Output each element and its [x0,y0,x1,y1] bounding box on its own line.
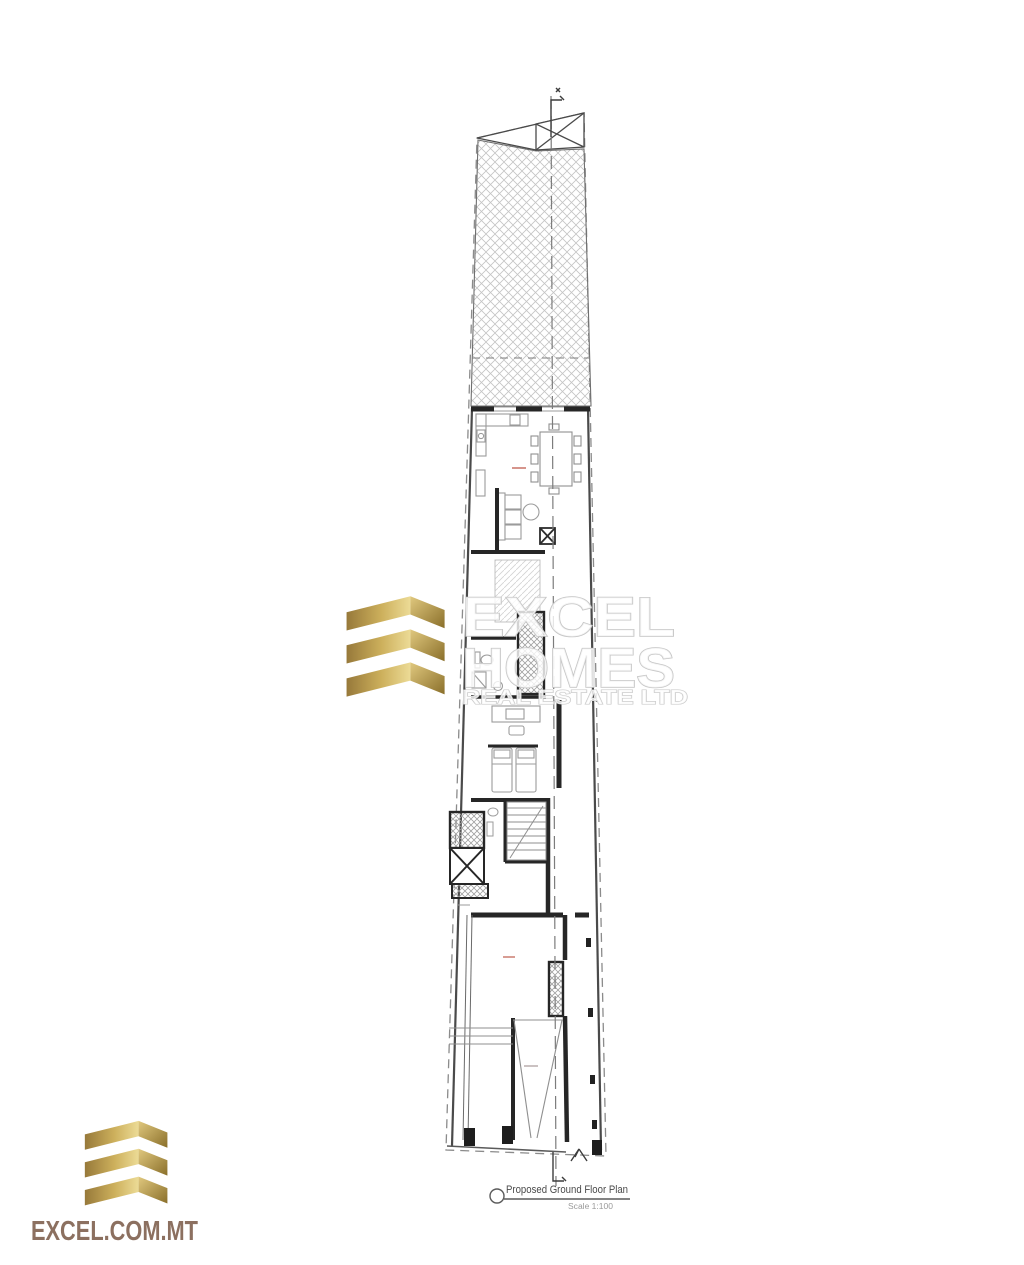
bedroom-beds [488,746,538,792]
lift-shaft [450,812,484,848]
watermark-line3: REAL ESTATE LTD [462,687,688,709]
drawing-canvas: Proposed Ground Floor Plan Scale 1:100 E… [0,0,1024,1265]
caption-scale: Scale 1:100 [568,1202,614,1211]
yard-hatch [471,140,591,406]
core-bath-fixtures [487,808,498,836]
rear-facade-wall [471,407,590,411]
caption-title: Proposed Ground Floor Plan [506,1184,628,1196]
void-x-box [450,848,484,884]
kitchen-counter [476,414,528,496]
footer-site-text: EXCEL.COM.MT [31,1215,198,1246]
coffee-table [523,504,539,520]
sofa [498,493,521,540]
excel-homes-gold-bars-logo [347,596,445,696]
dining-table [531,424,581,494]
garage-door-lines [449,1028,513,1044]
study-desk [492,706,540,735]
real-estate-floorplan-image: Proposed Ground Floor Plan Scale 1:100 E… [0,0,1024,1265]
footer-brand: EXCEL.COM.MT [31,1121,198,1246]
caption: Proposed Ground Floor Plan Scale 1:100 [490,1184,630,1211]
caption-bullet-circle [490,1189,504,1203]
staircase [507,802,546,860]
void-hatch-strip [452,884,488,898]
section-flag-bottom [553,1152,566,1181]
watermark: EXCEL HOMES REAL ESTATE LTD [347,585,688,709]
wall-column-markers [586,938,597,1129]
excel-gold-bars-logo [85,1121,168,1205]
garage-shaft-hatch [549,962,563,1016]
